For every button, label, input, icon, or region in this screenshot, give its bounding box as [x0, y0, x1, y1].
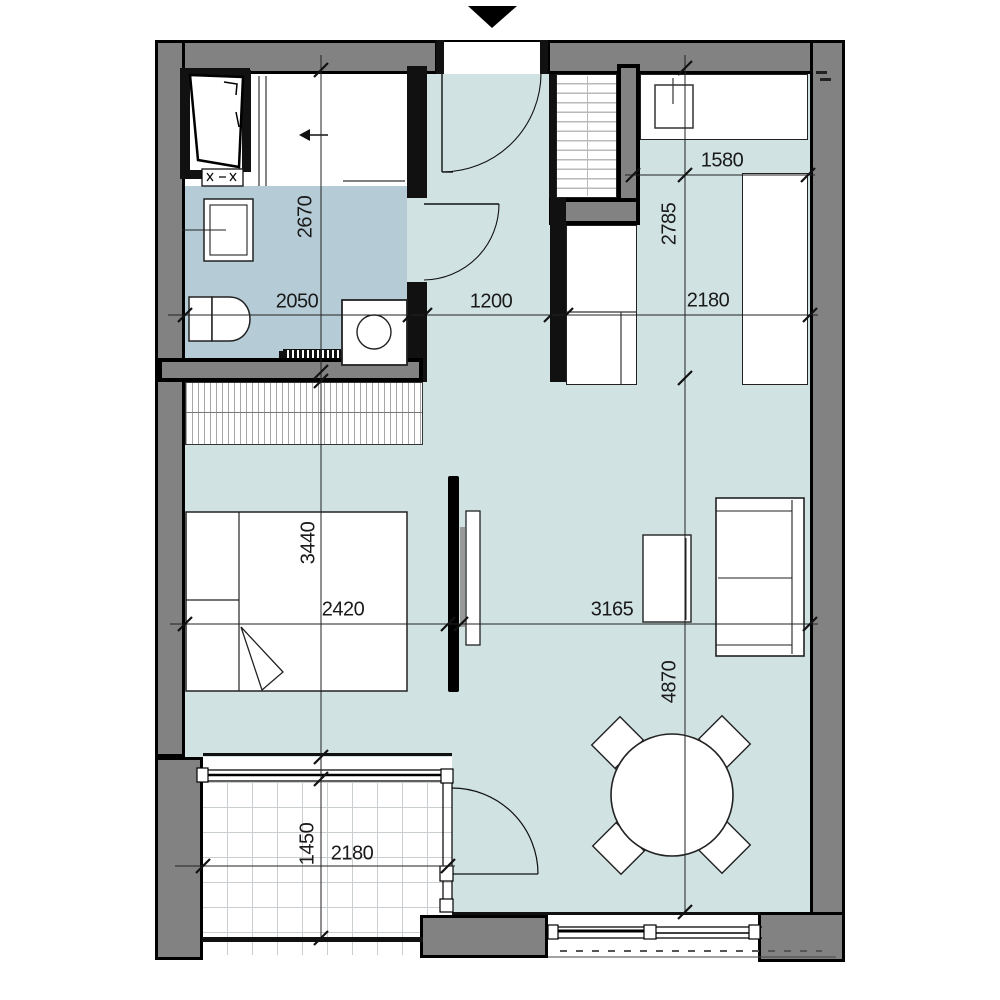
- dim-label-living-width: 3165: [591, 599, 634, 622]
- tv-panel: [466, 511, 480, 645]
- entrance-arrow-icon: [468, 6, 517, 28]
- balcony-door: [452, 788, 538, 874]
- plan-geometry: [0, 0, 1000, 1000]
- toilet: [189, 297, 250, 341]
- washing-machine: [342, 300, 407, 365]
- counter-appliance-lines: [566, 312, 637, 384]
- dim-label-kitchen-width: 2180: [687, 290, 730, 313]
- tv-mount: [460, 527, 465, 627]
- bathroom-door: [424, 204, 499, 280]
- dim-label-bath-width: 2050: [276, 291, 319, 314]
- dim-label-bedroom-depth: 3440: [298, 522, 321, 565]
- dim-label-kitchen-depth: 2785: [659, 203, 682, 246]
- wash-basin: [182, 199, 253, 261]
- dim-label-bath-depth: 2670: [295, 196, 318, 239]
- dim-label-kitchen-run: 1580: [701, 150, 744, 173]
- room-divider: [448, 476, 459, 692]
- shaft: [190, 75, 243, 167]
- living-window: [548, 925, 836, 957]
- dining-table: [611, 734, 733, 856]
- entrance-door: [442, 73, 541, 172]
- dim-label-balcony-width: 2180: [331, 843, 374, 866]
- dim-label-hall-width: 1200: [470, 291, 513, 314]
- dim-label-bedroom-width: 2420: [322, 599, 365, 622]
- balcony-window: [197, 768, 453, 912]
- slide-direction-arrow-icon: [299, 129, 328, 141]
- bed: [186, 512, 407, 691]
- dim-label-balcony-depth: 1450: [297, 823, 320, 866]
- sofa: [716, 498, 804, 656]
- dim-label-living-depth: 4870: [659, 661, 682, 704]
- coffee-table: [643, 535, 691, 622]
- shaft-hatch: [202, 169, 243, 186]
- floor-plan: 2670 2050 1200 2180 1580 2785 3440 2420 …: [0, 0, 1000, 1000]
- kitchen-sink: [655, 78, 693, 128]
- sliding-door-tracks: [259, 76, 405, 186]
